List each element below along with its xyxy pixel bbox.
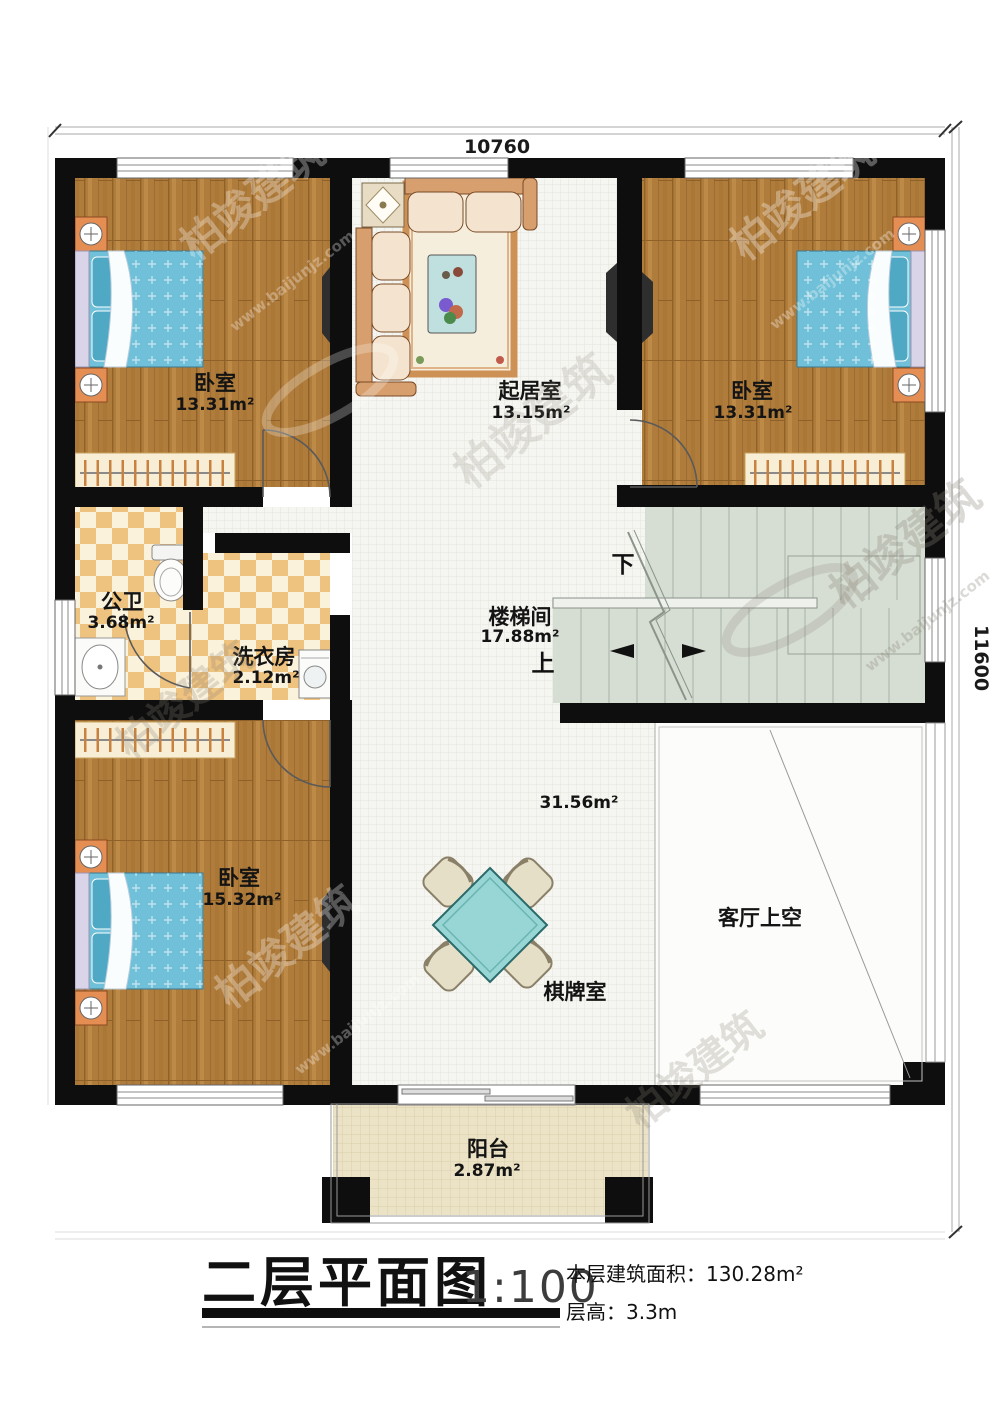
room-area-label: 2.87m² <box>453 1161 520 1181</box>
room-area-label: 31.56m² <box>540 793 619 813</box>
room-area-label: 17.88m² <box>481 627 560 647</box>
room-area-label: 13.31m² <box>714 403 793 423</box>
room-label: 阳台 <box>467 1137 509 1161</box>
room-label: 公卫 <box>101 590 143 614</box>
stair-down-label: 下 <box>612 552 635 578</box>
room-label: 卧室 <box>731 379 773 403</box>
coffee-table <box>428 255 476 333</box>
room-label: 楼梯间 <box>489 605 552 629</box>
room-area-label: 3.68m² <box>87 613 154 633</box>
games-room-furniture <box>420 854 557 995</box>
room-label: 客厅上空 <box>718 906 802 930</box>
title-underline <box>202 1308 560 1318</box>
window <box>55 600 75 695</box>
room-label: 棋牌室 <box>544 980 607 1004</box>
bed <box>75 873 203 989</box>
bed <box>75 251 203 367</box>
window <box>117 1085 283 1105</box>
plan-area: 本层建筑面积：130.28m² <box>566 1262 803 1286</box>
window <box>925 230 945 412</box>
floor-plan-canvas: 卧室 13.31m² 起居室 13.15m² 卧室 13.31m² 公卫 3.6… <box>0 0 1000 1420</box>
window <box>390 158 508 178</box>
plan-title: 二层平面图 <box>202 1251 492 1314</box>
stair-handrail <box>553 598 817 608</box>
tv-icon <box>642 272 653 343</box>
tv-icon-living <box>606 263 617 342</box>
dimension-right: 11600 <box>970 625 992 691</box>
tv-icon <box>322 267 330 343</box>
dimension-top: 10760 <box>464 136 530 158</box>
room-label: 卧室 <box>218 866 260 890</box>
void-floor <box>655 723 926 1085</box>
room-area-label: 13.31m² <box>176 395 255 415</box>
sink-icon <box>75 638 125 696</box>
window <box>700 1085 890 1105</box>
room-area-label: 15.32m² <box>203 890 282 910</box>
washing-machine-icon <box>299 650 331 698</box>
bed <box>797 251 925 367</box>
stair-up-label: 上 <box>532 651 555 677</box>
room-label: 卧室 <box>194 371 236 395</box>
sliding-door-balcony <box>398 1085 575 1105</box>
window-band-void <box>926 723 945 1062</box>
floor-plan: 卧室 13.31m² 起居室 13.15m² 卧室 13.31m² 公卫 3.6… <box>0 0 1000 1416</box>
plan-floor-height: 层高：3.3m <box>566 1300 677 1324</box>
